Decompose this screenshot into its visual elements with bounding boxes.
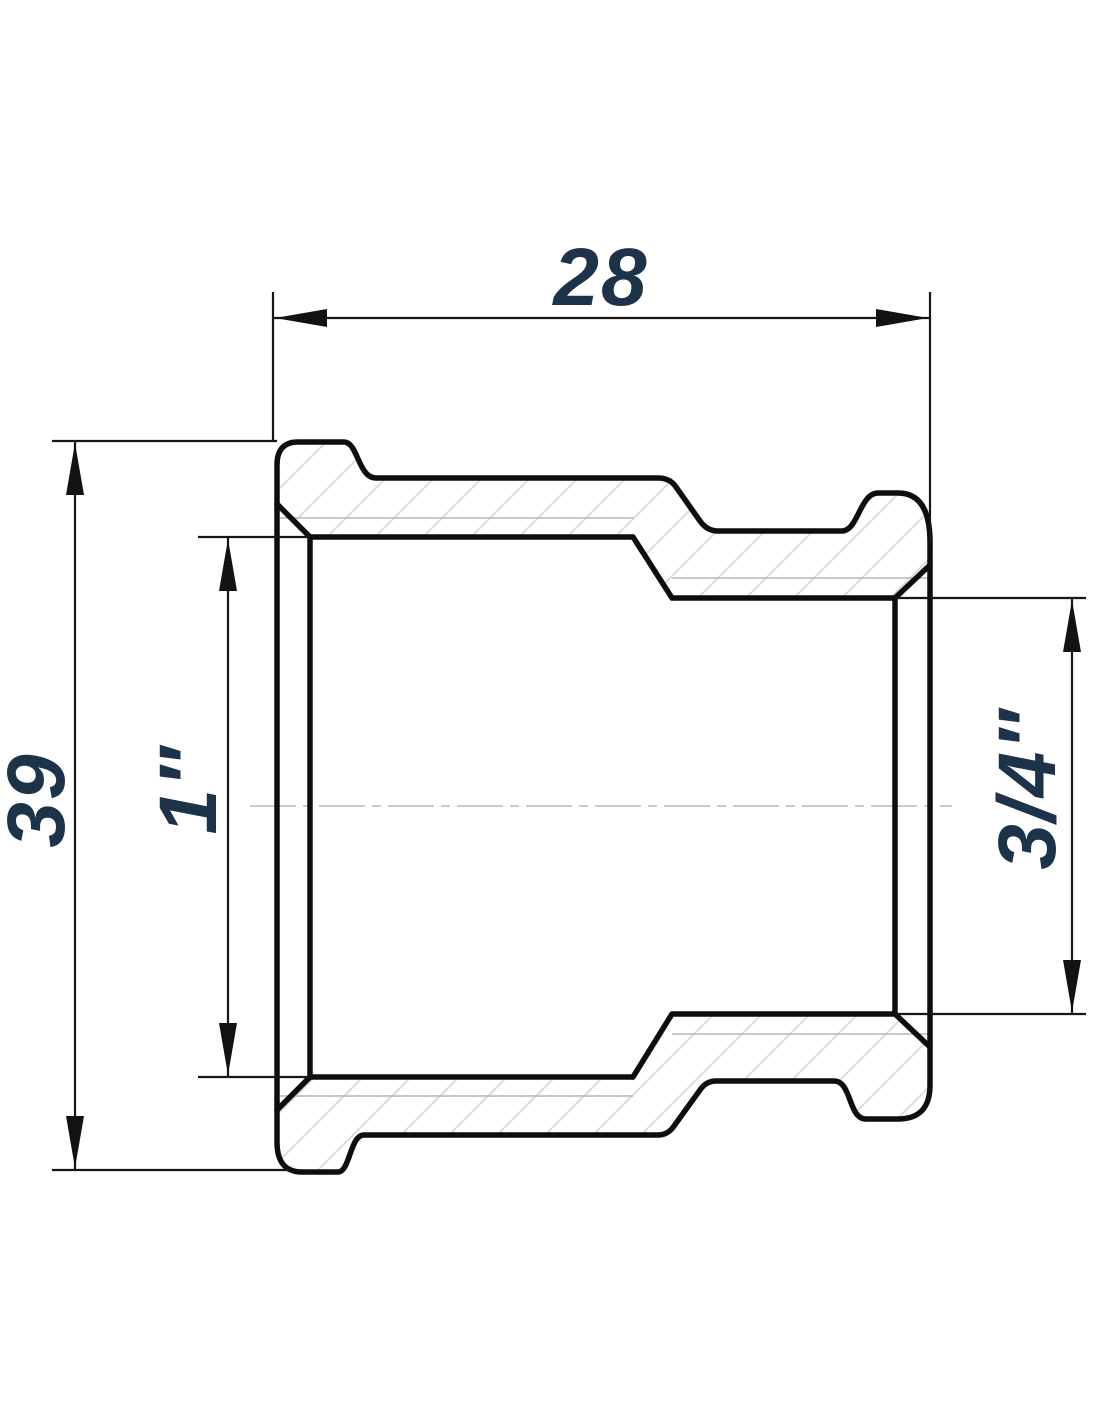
dim-arrow-left-icon	[275, 309, 327, 327]
dim-arrow-up-icon	[66, 443, 84, 495]
left-thread-dimension-label: 1″	[143, 744, 234, 835]
drawing-canvas: 28 39 1″ 3/4″	[0, 0, 1100, 1422]
section-hatch-bottom-wall	[277, 1014, 930, 1172]
width-dimension-label: 28	[551, 232, 648, 323]
section-hatch-top-wall	[277, 442, 930, 598]
height-dimension-label: 39	[0, 752, 82, 847]
dim-arrow-up-icon	[1063, 600, 1081, 652]
section-hatching	[277, 442, 930, 1172]
right-thread-dimension-label: 3/4″	[982, 707, 1073, 870]
dim-arrow-down-icon	[219, 1023, 237, 1075]
dim-arrow-up-icon	[219, 539, 237, 591]
dim-arrow-right-icon	[876, 309, 928, 327]
dim-arrow-down-icon	[1063, 960, 1081, 1012]
technical-drawing: 28 39 1″ 3/4″	[0, 0, 1100, 1422]
thread-major-lines	[280, 518, 928, 1096]
dim-arrow-down-icon	[66, 1116, 84, 1168]
